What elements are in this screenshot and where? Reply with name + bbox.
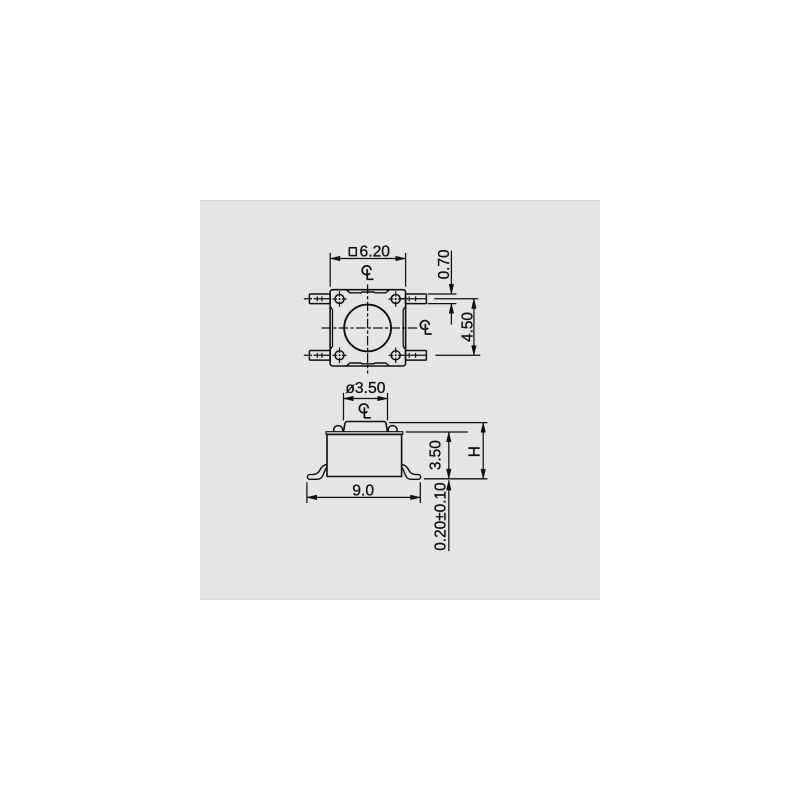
svg-text:H: H [466,446,483,457]
svg-text:4.50: 4.50 [459,312,476,342]
svg-text:ø3.50: ø3.50 [345,380,385,397]
svg-text:3.50: 3.50 [428,440,445,470]
svg-text:0.70: 0.70 [436,249,453,279]
svg-text:9.0: 9.0 [352,483,374,500]
svg-text:6.20: 6.20 [360,244,391,261]
svg-text:0.20±0.10: 0.20±0.10 [432,482,449,550]
